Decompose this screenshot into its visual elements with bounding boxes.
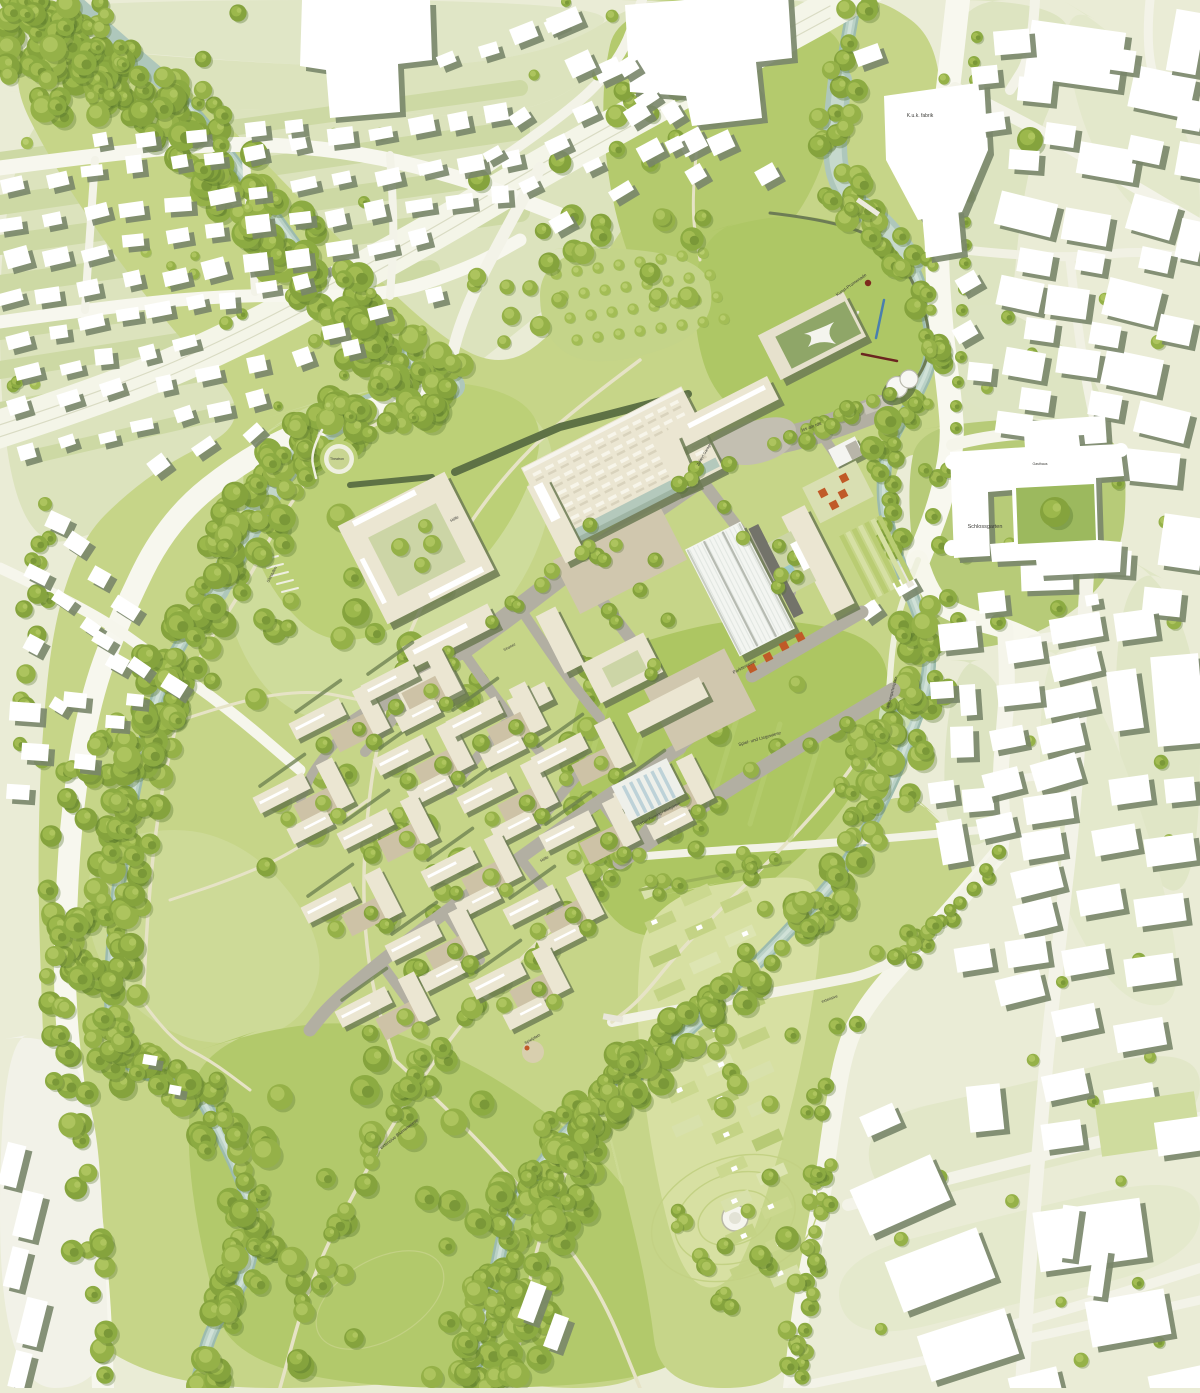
svg-text:K.u.k. fabrik: K.u.k. fabrik bbox=[907, 113, 934, 119]
svg-text:Schlossgarten: Schlossgarten bbox=[968, 524, 1003, 530]
svg-text:Gasthaus: Gasthaus bbox=[1033, 462, 1048, 466]
svg-text:Theatron: Theatron bbox=[330, 457, 344, 461]
